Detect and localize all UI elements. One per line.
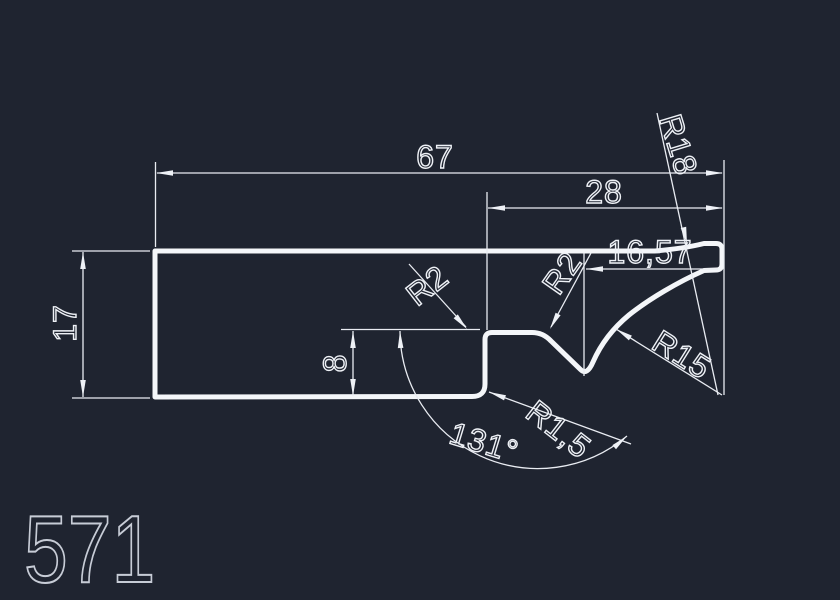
dimension-radius-r15: R15 (616, 323, 722, 395)
arrowhead-bottom (350, 379, 356, 396)
radius-r15-label: R15 (646, 323, 717, 386)
dimension-radius-r2-shoulder: R2 (535, 245, 591, 329)
arrowhead-bottom (80, 380, 86, 397)
arrowhead-left (156, 170, 173, 176)
dim-total-width-label: 67 (416, 139, 454, 175)
arrowhead (489, 392, 506, 400)
dim-step-height-label: 8 (317, 354, 353, 373)
arrowhead-right (706, 205, 723, 211)
dimension-left-height: 17 (47, 251, 150, 398)
arrowhead-left (488, 205, 505, 211)
part-number-group: 571 (24, 496, 155, 600)
cad-drawing-svg: 67 28 17 8 16,57 R18 (0, 0, 840, 600)
radius-r18-label: R18 (652, 110, 704, 180)
radius-r1-5-label: R1,5 (519, 393, 598, 465)
dim-right-width-label: 28 (585, 174, 623, 210)
cad-drawing-canvas: 67 28 17 8 16,57 R18 (0, 0, 840, 600)
dimension-step-height: 8 (317, 330, 480, 397)
dim-end-length-label: 16,57 (607, 234, 692, 270)
arrowhead (550, 313, 561, 329)
arrowhead-top (80, 252, 86, 269)
arrowhead (454, 314, 467, 329)
angle-131-label: 131° (445, 415, 523, 470)
arrowhead-left (586, 266, 603, 272)
radius-r2-step-label: R2 (399, 258, 455, 313)
arrowhead-right (706, 170, 723, 176)
dimension-radius-r2-step: R2 (399, 258, 467, 329)
arrowhead (616, 329, 632, 340)
dim-left-height-label: 17 (47, 304, 83, 342)
part-number: 571 (24, 496, 155, 600)
arrowhead-top (350, 331, 356, 348)
